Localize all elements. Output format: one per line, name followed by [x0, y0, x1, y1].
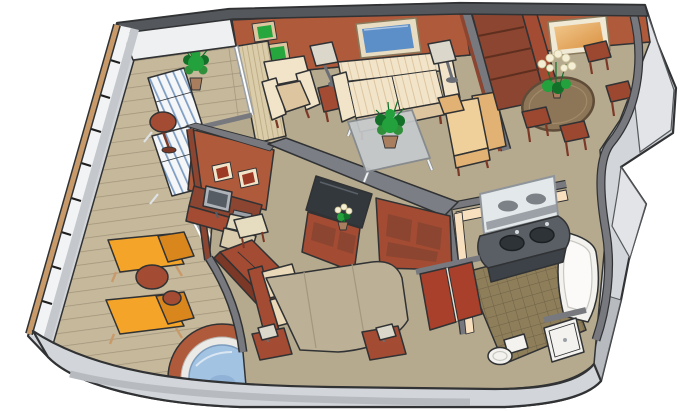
sink-basin-right: [530, 228, 554, 243]
suite-floor-plan: [0, 0, 680, 411]
bathtub-inner: [564, 240, 593, 312]
nook-picture-2: [238, 168, 259, 188]
green-wall-art-1: [252, 21, 277, 42]
blue-wall-art: [356, 18, 421, 58]
nook-picture-1: [212, 162, 233, 182]
sink-basin-left: [500, 236, 524, 251]
floor-plan-illustration: [0, 0, 680, 411]
